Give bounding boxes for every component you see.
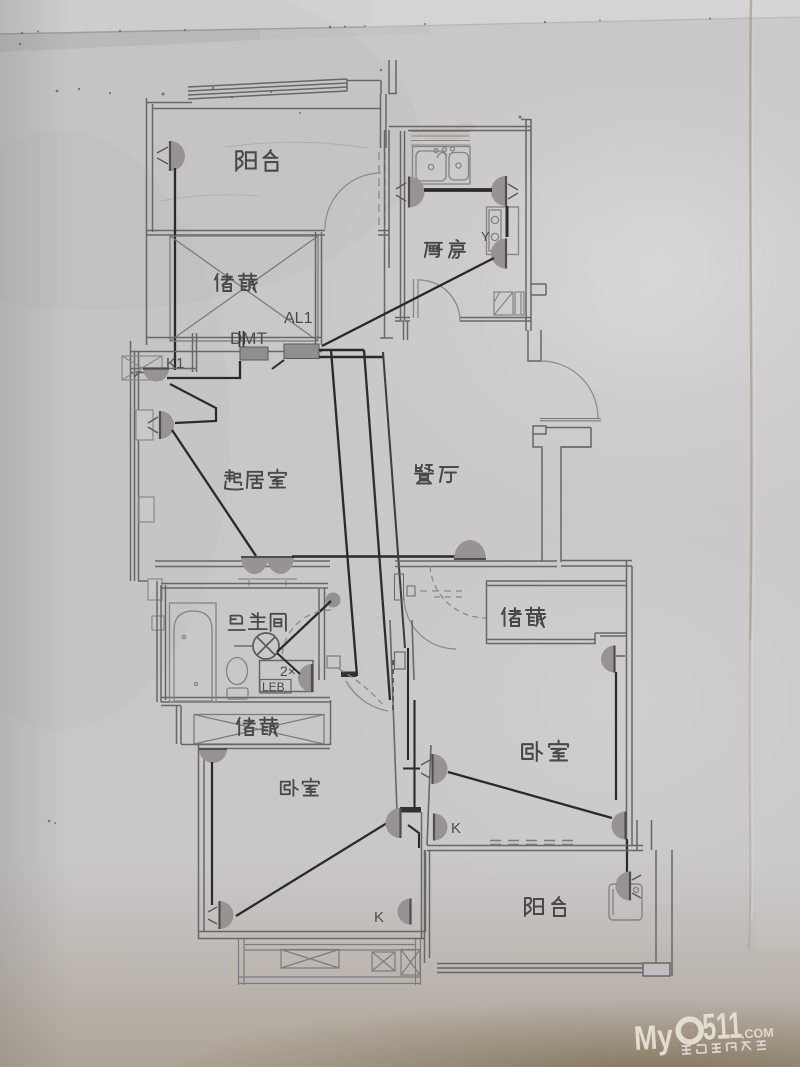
svg-text:2×: 2×: [280, 663, 296, 679]
svg-text:Y: Y: [481, 229, 490, 244]
svg-text:DMT: DMT: [230, 329, 267, 348]
svg-text:.COM: .COM: [741, 1026, 774, 1042]
svg-text:511: 511: [701, 1004, 743, 1048]
svg-text:K: K: [451, 820, 461, 837]
svg-text:My: My: [633, 1017, 675, 1058]
svg-text:AL1: AL1: [284, 310, 313, 327]
svg-text:LEB: LEB: [262, 680, 285, 694]
svg-text:K: K: [374, 909, 384, 926]
